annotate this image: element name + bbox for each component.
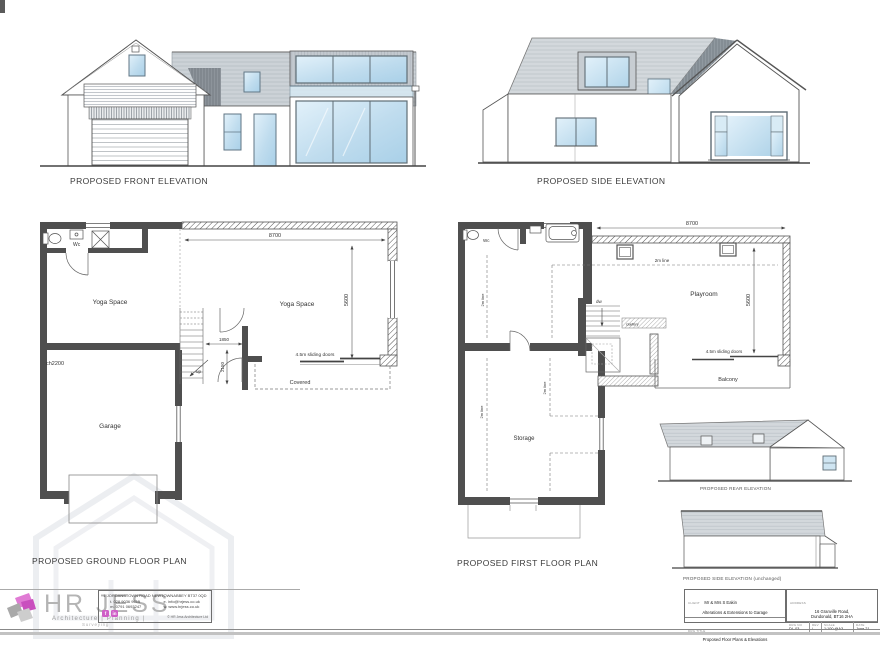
dimensions [185, 240, 385, 384]
client-label: CLIENT [688, 601, 700, 605]
wc-label: Wc [73, 242, 81, 248]
firm-contact-box: 1 JORDANSTOWN ROAD NEWTOWNABBEY BT37 0QD… [98, 590, 212, 623]
dim-depth: 5600 [746, 294, 752, 306]
first-floor-window [296, 56, 407, 83]
windows [86, 222, 397, 442]
side-elevation-drawing [475, 32, 815, 172]
sliding-doors [692, 357, 778, 360]
client-name: Mr & Mrs S Eakin [704, 600, 737, 605]
wc-door-arc [498, 228, 518, 250]
gallery-strip: Gallery [622, 318, 666, 328]
dim-hall-width: 1850 [219, 337, 230, 342]
lean-to [483, 94, 508, 162]
site-address-line2: Dundonald, BT16 2HA [787, 614, 877, 619]
room-yoga-right: Yoga Space [280, 301, 315, 308]
front-door [254, 114, 276, 166]
gable-vent [132, 46, 139, 52]
front-elevation-title: PROPOSED FRONT ELEVATION [70, 176, 208, 186]
wall [684, 536, 820, 567]
headroom-label-playroom: 2m line [655, 258, 670, 263]
storage-door [510, 331, 530, 351]
toilet-cistern [43, 233, 48, 244]
sliding-doors [300, 359, 380, 365]
ground-floor-plan-drawing: Wc up [30, 212, 400, 557]
lean-to-wall [820, 544, 835, 567]
scan-artifact [0, 0, 5, 13]
walls [458, 222, 605, 505]
covered-label: Covered [290, 380, 311, 386]
dim-width: 8700 [686, 221, 698, 227]
firm-address: 1 JORDANSTOWN ROAD NEWTOWNABBEY BT37 0QD [99, 593, 211, 598]
rear-elevation-title: PROPOSED REAR ELEVATION [700, 486, 771, 491]
shower [92, 231, 109, 248]
room-yoga-left: Yoga Space [93, 299, 128, 306]
address-label: ADDRESS [790, 601, 806, 605]
dim-depth: 5600 [344, 294, 350, 306]
fascia-cladding [84, 84, 196, 107]
toilet-cistern [463, 230, 467, 240]
stairs [180, 308, 208, 384]
stair-down-label: dw [596, 299, 603, 304]
bath [546, 224, 579, 242]
firm-web: w. www.hrjess.co.uk [164, 604, 200, 609]
toilet-bowl [468, 231, 479, 240]
dim-hall-depth: 2150 [220, 361, 225, 372]
room-garage: Garage [99, 423, 121, 430]
toilet-bowl [49, 234, 61, 244]
covered-area [180, 229, 390, 389]
new-walls-hatched [182, 222, 397, 366]
headroom-label-left: 2m line [480, 293, 485, 307]
side-elevation-title: PROPOSED SIDE ELEVATION [537, 176, 665, 186]
address-box: ADDRESS 16 Granville Road, Dundonald, BT… [786, 589, 878, 623]
headroom-label-storage: 2m line [479, 405, 484, 419]
glass-balustrade [290, 86, 413, 97]
sliding-glazed-doors [296, 101, 407, 163]
balcony [655, 359, 790, 388]
firm-logo-mark [5, 591, 43, 625]
roof-outline-below [468, 505, 580, 538]
stair-up-label: up [196, 369, 202, 374]
drawing-title: Proposed Floor Plans & Elevations [685, 637, 785, 642]
rooflights [617, 243, 736, 259]
firm-email: e. info@hrjess.co.uk [164, 599, 200, 604]
dim-width: 8700 [269, 233, 281, 239]
front-elevation-drawing [38, 28, 430, 176]
bottom-rule-thin [0, 629, 880, 630]
doors [66, 248, 244, 382]
firm-copyright: © HR Jess Architecture Ltd [167, 615, 208, 619]
first-floor-plan-title: PROPOSED FIRST FLOOR PLAN [457, 558, 598, 568]
gallery-label: Gallery [626, 322, 640, 327]
garage-front [68, 84, 204, 166]
main-wall [508, 94, 671, 162]
gable-window [129, 55, 145, 76]
garage-door-leaf [69, 475, 157, 523]
slat-band [89, 107, 191, 119]
gable-window [823, 456, 836, 470]
headroom-label-storage2: 2m line [542, 381, 547, 395]
wc-label: Wc [483, 238, 490, 243]
side-elevation-unchanged-drawing [668, 500, 843, 575]
dormer [578, 52, 636, 90]
garage-roller-door [92, 119, 188, 165]
side-elevation-unchanged-title: PROPOSED SIDE ELEVATION (unchanged) [683, 576, 781, 581]
ceiling-height-label: ch2200 [46, 361, 64, 367]
room-balcony: Balcony [718, 377, 738, 383]
facebook-icon: f [102, 610, 109, 617]
room-playroom: Playroom [690, 291, 717, 298]
sliding-doors-label: 4.5m sliding doors [706, 349, 743, 354]
ground-floor-plan-title: PROPOSED GROUND FLOOR PLAN [32, 556, 187, 566]
basin [530, 226, 541, 233]
room-storage: Storage [513, 436, 535, 442]
gable-window [708, 112, 790, 160]
upper-window [244, 72, 260, 92]
client-box: CLIENT Mr & Mrs S Eakin Alterations & Ex… [684, 589, 786, 623]
project-name: Alterations & Extensions to Garage [685, 610, 785, 615]
sliding-doors-label: 4.5m sliding doors [296, 352, 336, 358]
drawing-sheet: PROPOSED FRONT ELEVATION [0, 0, 880, 645]
bottom-rule-thick [0, 632, 880, 635]
walls [40, 222, 262, 504]
long-wall [670, 447, 770, 480]
linkedin-icon: in [111, 610, 118, 617]
two-storey-glazed-section [290, 51, 413, 166]
roof [681, 511, 825, 536]
